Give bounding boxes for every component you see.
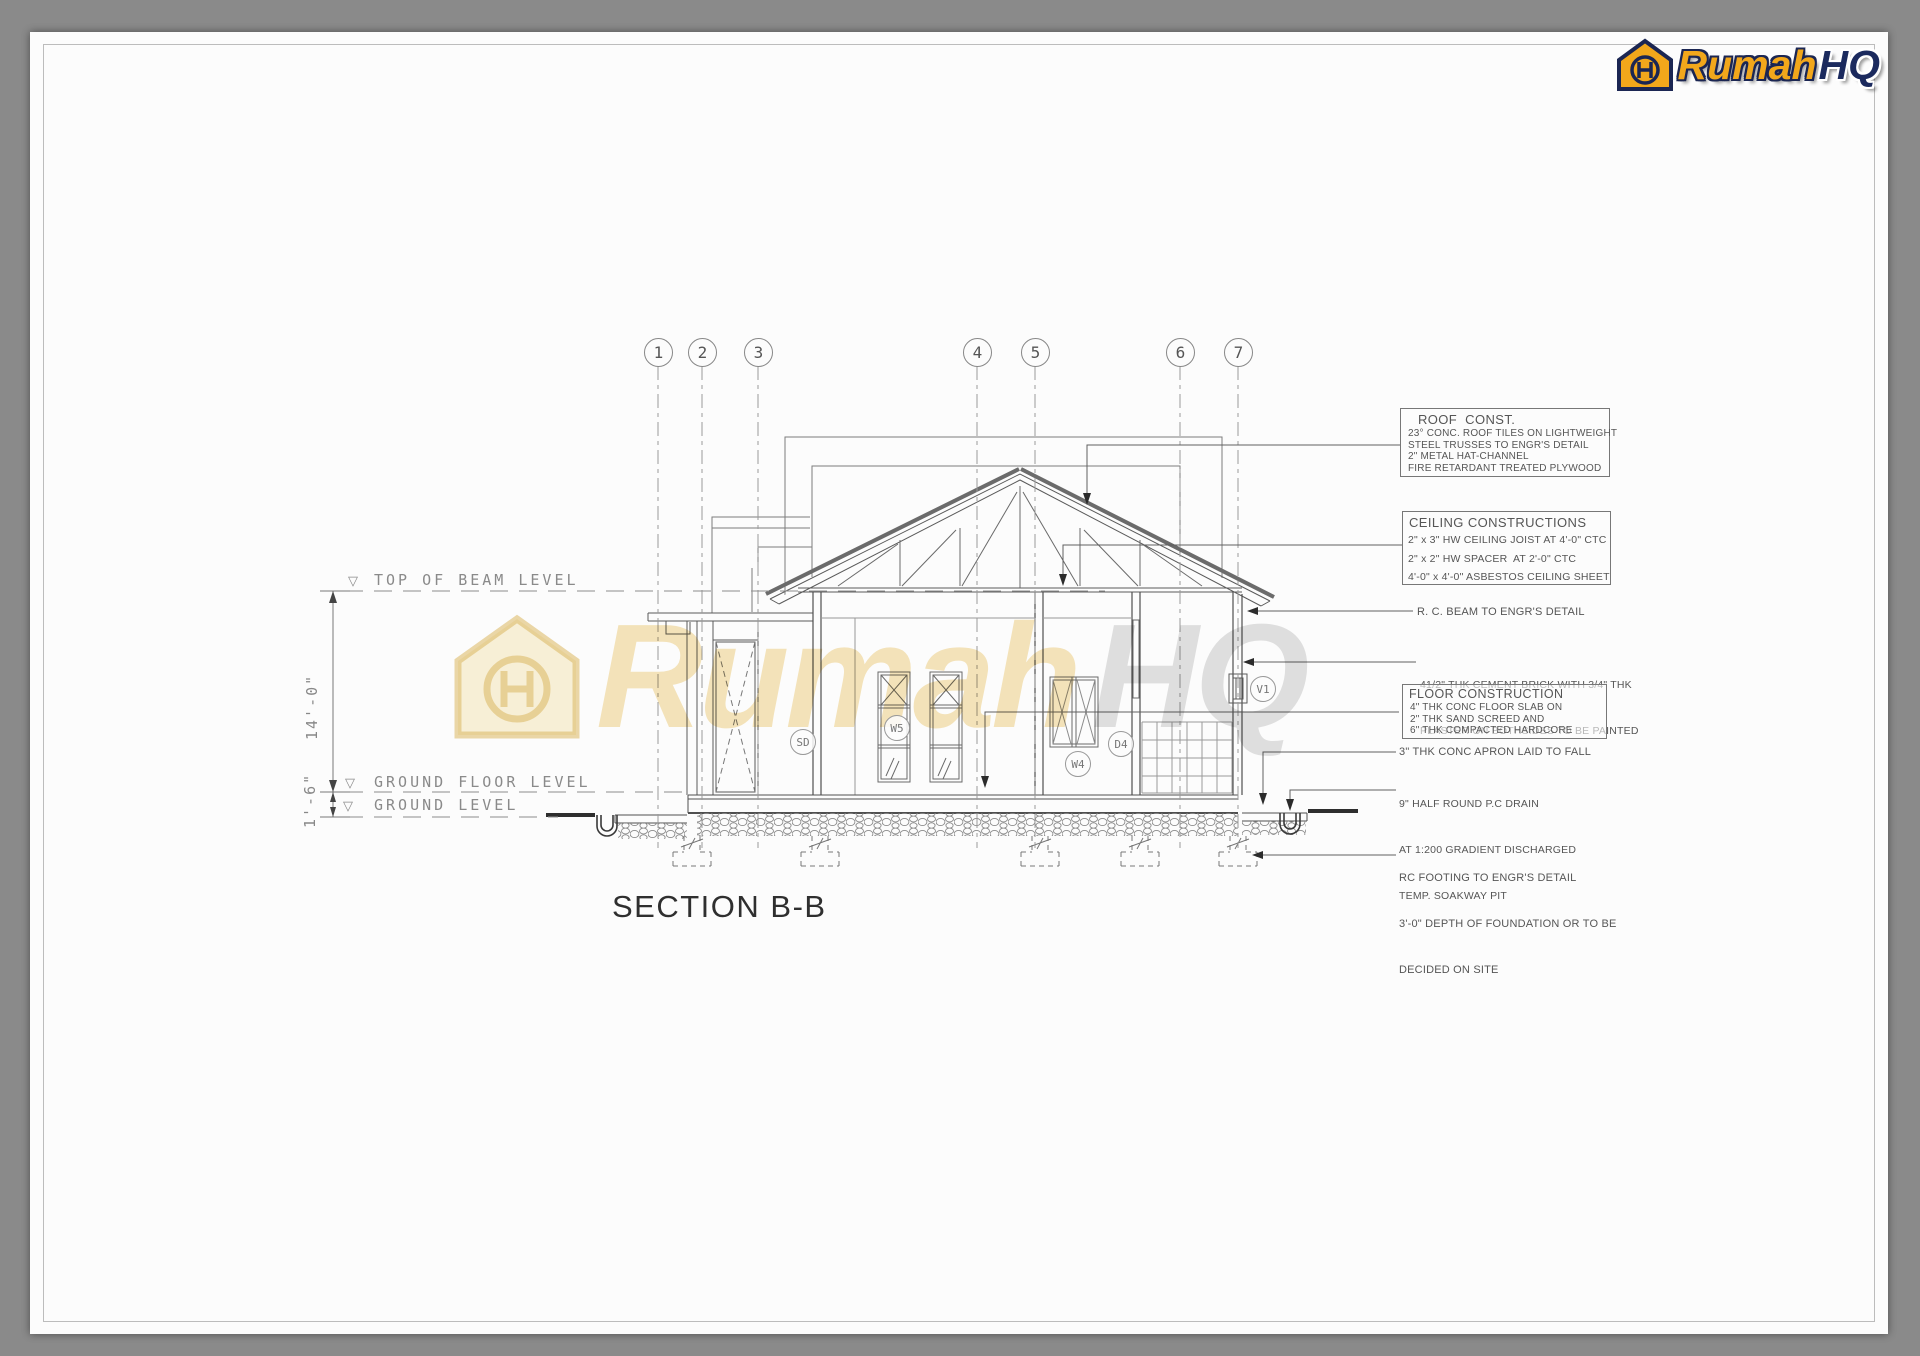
grid-bubble-1: 1: [644, 338, 673, 367]
tag-label: D4: [1114, 738, 1127, 751]
note-line: 2" x 2" HW SPACER AT 2'-0" CTC: [1403, 550, 1610, 569]
grid-bubble-3: 3: [744, 338, 773, 367]
grid-number: 6: [1176, 343, 1186, 362]
tag-label: W5: [890, 722, 903, 735]
grid-bubble-6: 6: [1166, 338, 1195, 367]
grid-number: 1: [654, 343, 664, 362]
walls: [813, 592, 1242, 795]
level-label-ground-floor: GROUND FLOOR LEVEL: [374, 773, 591, 791]
grid-number: 5: [1031, 343, 1041, 362]
grid-bubble-2: 2: [688, 338, 717, 367]
tag-label: W4: [1071, 758, 1084, 771]
grid-number: 7: [1234, 343, 1244, 362]
logo-house-icon: [1616, 38, 1674, 92]
note-line: 3'-0" DEPTH OF FOUNDATION OR TO BE: [1399, 917, 1617, 932]
drawing-title: SECTION B-B: [612, 889, 827, 925]
note-line: DECIDED ON SITE: [1399, 963, 1617, 978]
grid-number: 4: [973, 343, 983, 362]
note-line: 6" THK COMPACTED HARDCORE: [1403, 725, 1606, 737]
note-title: CEILING CONSTRUCTIONS: [1403, 512, 1610, 531]
grid-number: 2: [698, 343, 708, 362]
note-line: 4" THK CONC FLOOR SLAB ON: [1403, 702, 1606, 714]
note-line: RC FOOTING TO ENGR'S DETAIL: [1399, 871, 1617, 886]
dimension-beam-to-floor: 14'-0": [303, 645, 321, 740]
note-floor-construction: FLOOR CONSTRUCTION 4" THK CONC FLOOR SLA…: [1402, 684, 1607, 739]
logo-text-secondary: HQ: [1819, 42, 1881, 89]
note-line: 2" THK SAND SCREED AND: [1403, 714, 1606, 726]
grid-number: 3: [754, 343, 764, 362]
grid-bubble-4: 4: [963, 338, 992, 367]
grid-bubble-5: 5: [1021, 338, 1050, 367]
tag-vent-v1: V1: [1250, 676, 1276, 702]
note-ceiling-constructions: CEILING CONSTRUCTIONS 2" x 3" HW CEILING…: [1402, 511, 1611, 585]
grid-bubble-7: 7: [1224, 338, 1253, 367]
hardcore-hatch: [697, 813, 1238, 836]
tag-window-w4: W4: [1065, 751, 1091, 777]
level-label-top-of-beam: TOP OF BEAM LEVEL: [374, 571, 579, 589]
footings: [673, 836, 1257, 866]
tag-window-w5: W5: [884, 715, 910, 741]
note-line: 2" METAL HAT-CHANNEL: [1401, 451, 1609, 463]
level-marker-icon: ▽: [343, 799, 353, 814]
note-roof-construction: ROOF CONST. 23° CONC. ROOF TILES ON LIGH…: [1400, 408, 1610, 477]
tag-sliding-door: SD: [790, 729, 816, 755]
note-line: 2" x 3" HW CEILING JOIST AT 4'-0" CTC: [1403, 531, 1610, 550]
door-d4-leaf: [1133, 620, 1139, 698]
level-marker-icon: ▽: [348, 574, 358, 589]
dimension-floor-to-ground: 1'-6": [301, 768, 319, 828]
note-line: 23° CONC. ROOF TILES ON LIGHTWEIGHT: [1401, 428, 1609, 440]
note-rc-beam: R. C. BEAM TO ENGR'S DETAIL: [1417, 605, 1585, 620]
hardcore-hatch-left: [618, 823, 687, 839]
note-apron: 3" THK CONC APRON LAID TO FALL: [1399, 745, 1591, 760]
tag-label: V1: [1256, 683, 1269, 696]
note-line: 4'-0" x 4'-0" ASBESTOS CEILING SHEET: [1403, 568, 1610, 587]
note-rc-footing: RC FOOTING TO ENGR'S DETAIL 3'-0" DEPTH …: [1399, 841, 1617, 993]
level-marker-icon: ▽: [345, 776, 355, 791]
note-title: ROOF CONST.: [1401, 409, 1609, 428]
brand-logo: Rumah HQ: [1616, 38, 1880, 92]
note-line: FIRE RETARDANT TREATED PLYWOOD: [1401, 463, 1609, 475]
footing-break-marks: [681, 838, 1249, 849]
logo-text-primary: Rumah: [1678, 42, 1817, 89]
lattice-grille: [1142, 722, 1232, 793]
note-title: FLOOR CONSTRUCTION: [1403, 685, 1606, 702]
tag-door-d4: D4: [1108, 731, 1134, 757]
level-label-ground: GROUND LEVEL: [374, 796, 518, 814]
note-line: 9" HALF ROUND P.C DRAIN: [1399, 797, 1576, 812]
note-line: STEEL TRUSSES TO ENGR'S DETAIL: [1401, 440, 1609, 452]
page: { "logo": { "brand_primary": "Rumah", "b…: [0, 0, 1920, 1356]
sliding-door: [713, 621, 758, 795]
tag-label: SD: [796, 736, 809, 749]
